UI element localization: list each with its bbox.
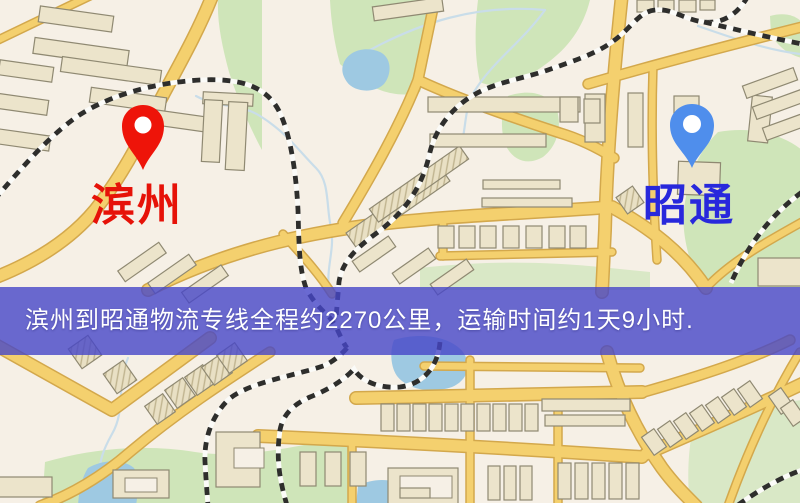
destination-city-label: 昭通 [643,181,735,230]
route-info-text: 滨州到昭通物流专线全程约2270公里，运输时间约1天9小时. [0,287,800,355]
map-background: 滨州 昭通 [0,0,800,503]
origin-city-label: 滨州 [91,181,183,230]
route-info-banner: 滨州到昭通物流专线全程约2270公里，运输时间约1天9小时. [0,287,800,355]
logistics-route-map: 滨州 昭通 滨州到昭通物流专线全程约2270公里，运输时间约1天9小时. [0,0,800,503]
